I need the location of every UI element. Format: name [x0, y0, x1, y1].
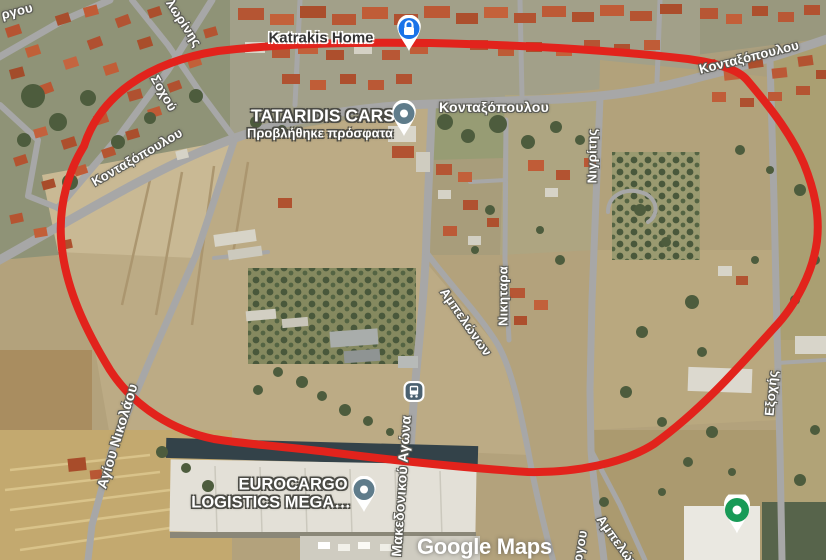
- eurocargo-place-pin-icon[interactable]: [349, 476, 379, 518]
- google-maps-watermark[interactable]: Google Maps: [417, 534, 552, 560]
- poi-label-katrakis-home: Katrakis Home: [268, 30, 373, 47]
- poi-label-tataridis-cars: TATARIDIS CARS: [251, 106, 395, 127]
- tataridis-place-pin-icon[interactable]: [389, 100, 419, 142]
- poi-sublabel-viewed-recently: Προβλήθηκε πρόσφατα: [247, 126, 393, 141]
- map-canvas[interactable]: [0, 0, 826, 560]
- lock-pin-icon[interactable]: [394, 15, 424, 57]
- visited-green-pin-icon[interactable]: [720, 495, 754, 540]
- map-viewport[interactable]: ργου λωρίνης Σοχού Κονταξόπουλου Κονταξό…: [0, 0, 826, 560]
- poi-label-eurocargo-line1: EUROCARGO: [238, 476, 347, 495]
- poi-label-eurocargo-line2: LOGISTICS MEGA…: [191, 494, 351, 513]
- bus-stop-icon[interactable]: [404, 381, 425, 407]
